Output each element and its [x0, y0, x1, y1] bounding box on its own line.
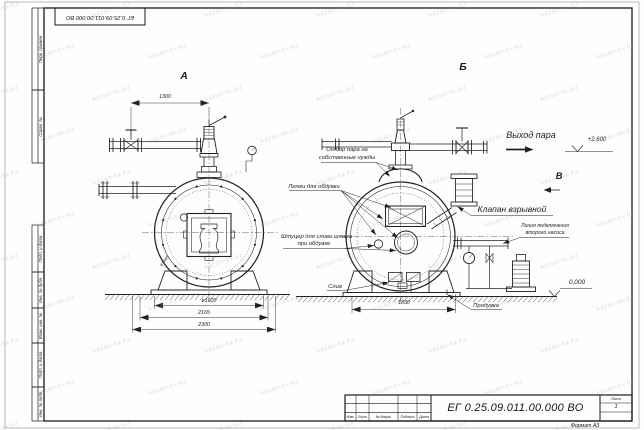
left-view-boiler [99, 116, 290, 303]
margin-sprav-no: Справ. № [36, 77, 46, 177]
label-sludge-drain-2: при обдувке [291, 241, 337, 247]
dim-2300: 2300 [184, 323, 224, 329]
drawing-sheet: ЕГ 0.25.09.011.00.000 ВО Перв. примен. С… [0, 0, 644, 430]
format-label: Формат А3 [550, 422, 620, 430]
sheet-label: Лист [600, 395, 632, 403]
label-sludge-drain-1: Штуцер для слива шлама [281, 234, 347, 240]
top-stamp-doc-number: ЕГ 0.25.09.011.00.000 ВО [55, 8, 145, 25]
label-steam-outlet: Выход пара [501, 130, 561, 140]
elevation-2600: +2,600 [580, 137, 614, 144]
safety-valve-right [395, 110, 414, 143]
view-label-a: А [176, 71, 192, 83]
explosion-valve [427, 174, 477, 229]
label-blowdown: Продувка [470, 303, 502, 309]
label-explosion-valve: Клапан взрывной [470, 205, 554, 215]
dim-2165: 2165 [184, 311, 224, 317]
label-drain: Слив [326, 284, 344, 290]
steam-outlet-pipe [410, 128, 488, 155]
sheet-number: 1 [600, 403, 632, 412]
feed-pipe-valve-left [109, 130, 202, 152]
pump [507, 255, 536, 292]
label-blowoff-hatches: Лючки для обдувки [287, 184, 341, 190]
line-art [0, 0, 644, 430]
dim-1920: ø1920 [189, 299, 229, 305]
view-label-v: В [552, 172, 566, 183]
dim-1830: 1830 [384, 301, 424, 307]
safety-valve-left [197, 116, 226, 178]
title-col-data: Дата [417, 413, 431, 421]
frame-borders [5, 2, 639, 428]
title-col-podpis: Подпись [398, 413, 417, 421]
pump-pipework [453, 238, 512, 289]
margin-inv-podl: Инв. № подл. [36, 354, 46, 430]
label-steam-extraction-1: Отбор пара на [317, 147, 377, 153]
label-second-pump-line-1: Линия подключения [519, 224, 571, 230]
manhole-hatch [386, 206, 426, 227]
label-steam-extraction-2: собственные нужды [314, 155, 380, 161]
dim-1300: 1300 [145, 95, 185, 101]
view-label-b: Б [455, 62, 471, 74]
title-col-list: Лист [356, 413, 369, 421]
title-col-dokum: № докум. [369, 413, 398, 421]
flanged-connection-left [99, 181, 176, 199]
title-col-izm: Изм. [345, 413, 356, 421]
label-second-pump-line-2: второго насоса [522, 231, 568, 237]
pressure-gauge-left [246, 146, 256, 172]
title-block-doc-number: ЕГ 0.25.09.011.00.000 ВО [431, 395, 600, 421]
elevation-0000: 0,000 [560, 279, 594, 286]
